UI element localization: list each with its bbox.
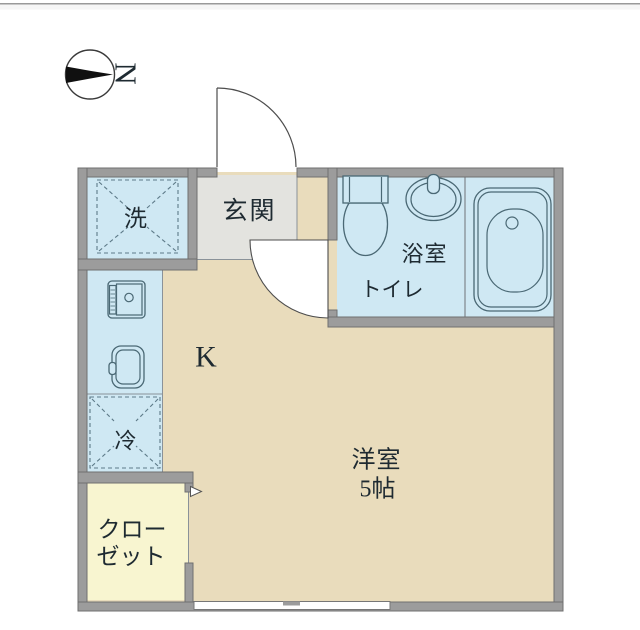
window-center-tick <box>283 602 300 606</box>
wall-right <box>554 168 563 611</box>
floor-plan-page: N 玄関 洗 浴室 トイレ K 冷 クロー ゼット 洋室 5帖 <box>0 0 640 630</box>
closet-label-line2: ゼット <box>97 544 166 569</box>
wall-bathroom-bottom <box>328 317 554 327</box>
wall-closet-top <box>78 472 193 483</box>
window <box>194 602 390 610</box>
page-top-divider <box>0 3 640 5</box>
toilet-label: トイレ <box>361 277 424 301</box>
basin-faucet <box>428 175 440 194</box>
entrance-label: 玄関 <box>222 197 276 225</box>
main-room-label: 洋室 <box>352 446 402 473</box>
entrance-door-arc <box>217 88 296 167</box>
page-top-strip <box>0 5 640 10</box>
wall-washer-right <box>188 168 197 270</box>
entrance-door <box>217 88 296 167</box>
wall-bathroom-left <box>328 168 337 240</box>
north-label: N <box>109 62 144 84</box>
floor-plan-drawing: N 玄関 洗 浴室 トイレ K 冷 クロー ゼット 洋室 5帖 <box>0 0 640 630</box>
kitchen-sink-outer <box>112 346 144 388</box>
compass: N <box>66 50 144 99</box>
bathroom-label: 浴室 <box>401 242 447 267</box>
fridge-label: 冷 <box>114 429 136 454</box>
kitchen-sink-notch <box>109 363 116 375</box>
toilet-fixture <box>343 176 388 256</box>
stove-outer <box>108 281 145 318</box>
main-room-size-label: 5帖 <box>360 475 396 502</box>
bathtub-fixture <box>474 188 551 311</box>
stove-fixture <box>108 281 145 318</box>
wall-washer-bottom <box>78 259 197 270</box>
wall-left <box>78 168 87 611</box>
kitchen-label: K <box>195 341 217 374</box>
kitchen-sink-fixture <box>109 346 144 388</box>
closet-label-line1: クロー <box>98 517 167 542</box>
wall-closet-right-bottom <box>185 563 193 602</box>
washer-label: 洗 <box>124 206 147 231</box>
